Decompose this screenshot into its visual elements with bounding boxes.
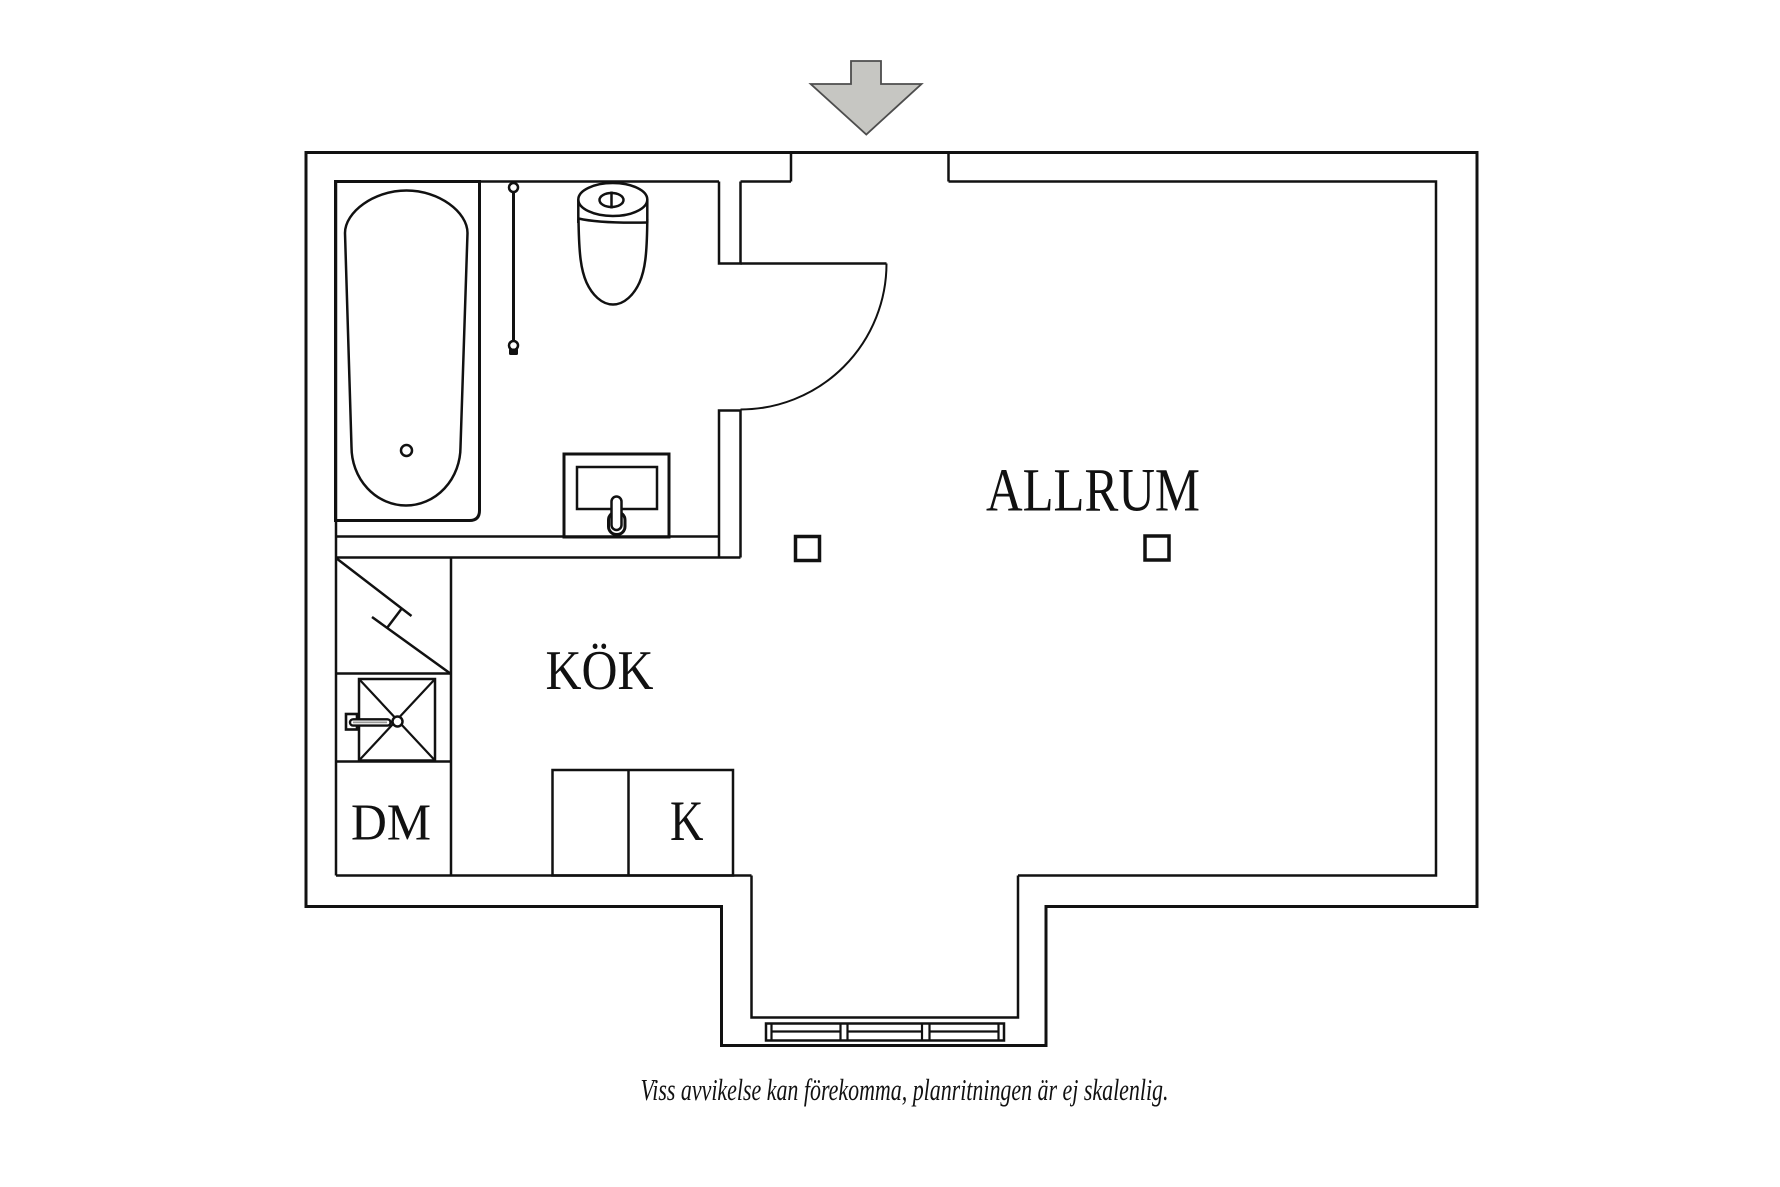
svg-text:K: K <box>670 790 704 853</box>
svg-text:ALLRUM: ALLRUM <box>986 458 1200 525</box>
svg-text:DM: DM <box>351 795 431 852</box>
svg-text:KÖK: KÖK <box>546 640 654 702</box>
svg-text:Viss avvikelse kan förekomma,: Viss avvikelse kan förekomma, planritnin… <box>641 1072 1169 1107</box>
